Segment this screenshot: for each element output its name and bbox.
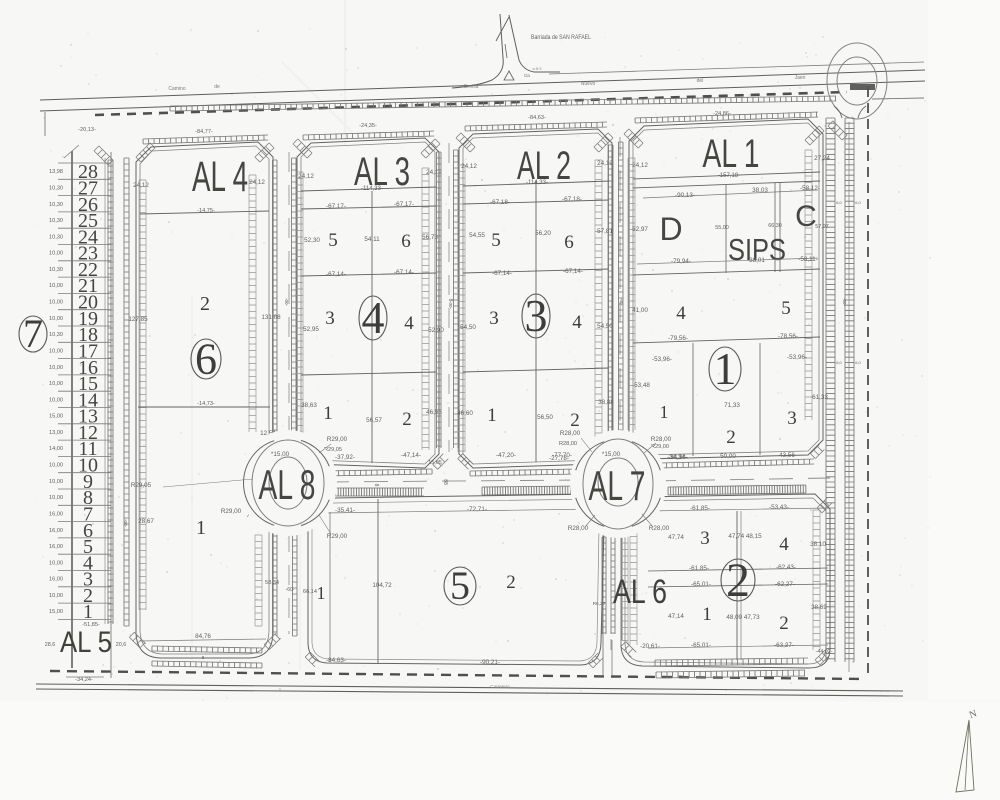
svg-text:15,00: 15,00 [49,609,63,615]
svg-text:2: 2 [200,293,210,315]
svg-text:38,03: 38,03 [752,187,768,194]
svg-text:24,12: 24,12 [133,182,149,189]
svg-text:-00-: -00- [842,298,847,307]
svg-text:24,12: 24,12 [461,163,477,170]
svg-text:54,55: 54,55 [469,232,485,239]
svg-text:71,33: 71,33 [724,402,740,409]
svg-text:-90,13-: -90,13- [675,192,695,199]
svg-text:16,00: 16,00 [49,544,63,550]
svg-text:1: 1 [323,403,333,424]
svg-text:52,30: 52,30 [304,237,320,244]
svg-text:38,63: 38,63 [301,402,317,409]
svg-text:4: 4 [362,292,385,343]
svg-text:3: 3 [787,408,797,429]
svg-text:10,00: 10,00 [49,348,63,354]
svg-text:de: de [214,84,220,90]
svg-text:AL 7: AL 7 [589,462,646,509]
svg-text:4: 4 [676,303,686,324]
svg-text:84,76: 84,76 [195,633,211,640]
svg-text:1: 1 [714,343,737,394]
svg-text:-44,02-: -44,02- [815,649,832,655]
svg-text:2: 2 [779,613,789,634]
svg-text:14,00: 14,00 [49,446,63,452]
svg-text:5: 5 [781,298,791,319]
svg-text:47,74 48,15: 47,74 48,15 [728,533,762,540]
svg-text:-67,14-: -67,14- [492,270,512,277]
svg-text:10,30: 10,30 [49,267,63,273]
svg-text:15,05: 15,05 [428,460,442,466]
svg-text:5: 5 [491,230,501,251]
svg-text:52,95: 52,95 [303,326,319,333]
svg-text:54,50: 54,50 [460,324,476,331]
svg-text:55,00: 55,00 [715,225,729,231]
svg-text:*15,00: *15,00 [271,451,290,458]
svg-text:52,97: 52,97 [632,226,648,233]
svg-text:24,12: 24,12 [298,173,314,180]
svg-text:47,74: 47,74 [668,534,684,541]
svg-text:24,12: 24,12 [249,179,265,186]
svg-text:-34,34-: -34,34- [668,454,688,461]
svg-text:2: 2 [506,572,516,593]
svg-text:R28,00: R28,00 [559,441,577,447]
svg-text:-79,56-: -79,56- [668,335,688,342]
svg-text:56,57: 56,57 [366,417,382,424]
svg-text:-84,63-: -84,63- [326,657,346,664]
svg-text:1: 1 [660,402,669,422]
svg-text:-58,12-: -58,12- [800,185,820,192]
svg-text:10,00: 10,00 [49,381,63,387]
svg-text:2: 2 [726,427,736,448]
svg-text:-61,85-: -61,85- [690,505,710,512]
svg-text:24,12: 24,12 [597,160,613,167]
svg-text:1: 1 [702,604,712,625]
svg-text:-47,20-: -47,20- [496,452,516,459]
svg-text:48: 48 [677,674,683,680]
svg-text:10,00: 10,00 [49,251,63,257]
svg-text:5: 5 [328,230,338,251]
svg-text:38,10: 38,10 [810,541,826,548]
svg-text:-47,14-: -47,14- [401,452,421,459]
svg-text:20,6: 20,6 [116,642,127,648]
svg-text:127,85: 127,85 [128,316,148,323]
svg-text:3: 3 [700,528,710,549]
svg-text:-67,18-: -67,18- [490,199,510,206]
svg-text:10,30: 10,30 [49,186,63,192]
svg-text:-67,17-: -67,17- [326,203,346,210]
svg-text:28,67: 28,67 [138,518,154,525]
svg-text:10,30: 10,30 [49,218,63,224]
svg-text:10,00: 10,00 [49,397,63,403]
svg-text:10,00: 10,00 [49,283,63,289]
svg-text:D: D [659,211,682,247]
svg-text:10,00: 10,00 [49,593,63,599]
svg-text:2: 2 [570,410,580,431]
svg-text:4: 4 [572,312,582,333]
svg-text:2: 2 [402,409,412,430]
svg-text:Camino: Camino [168,86,185,92]
svg-text:1: 1 [83,601,93,623]
svg-text:16,00: 16,00 [49,512,63,518]
svg-text:10,30: 10,30 [49,202,63,208]
svg-text:13,98: 13,98 [49,169,63,175]
svg-text:38,01: 38,01 [749,257,765,264]
svg-text:8: 8 [202,655,205,660]
svg-text:47,14: 47,14 [668,613,684,620]
svg-text:R29,00: R29,00 [327,533,348,540]
svg-text:6,0: 6,0 [836,200,842,205]
svg-text:66,14: 66,14 [303,589,317,595]
svg-text:50,00: 50,00 [720,453,736,460]
svg-text:10,00: 10,00 [49,560,63,566]
svg-text:8: 8 [447,299,453,302]
svg-text:16,00: 16,00 [49,577,63,583]
svg-text:6: 6 [564,232,574,253]
svg-text:4: 4 [404,313,414,334]
svg-text:27,24: 27,24 [814,155,830,162]
svg-text:-67,18-: -67,18- [562,196,582,203]
svg-text:56,20: 56,20 [535,230,551,237]
svg-text:-53,96-: -53,96- [652,356,672,363]
svg-text:13,00: 13,00 [49,430,63,436]
svg-text:61,33: 61,33 [812,394,828,401]
svg-text:6,0: 6,0 [855,200,861,205]
svg-text:-53,43-: -53,43- [769,504,789,511]
svg-text:-58,11-: -58,11- [798,256,817,263]
svg-text:6,0: 6,0 [855,360,861,365]
svg-text:-62,27-: -62,27- [775,581,795,588]
svg-text:-61,85-: -61,85- [689,565,709,572]
svg-text:-20,13-: -20,13- [78,127,96,133]
svg-text:R29,00: R29,00 [327,436,348,443]
svg-text:10,30: 10,30 [49,234,63,240]
svg-text:41,00: 41,00 [632,307,648,314]
svg-text:Jaen: Jaen [795,75,806,81]
svg-text:-67,14-: -67,14- [326,271,346,278]
svg-text:7: 7 [23,311,43,356]
svg-text:4: 4 [779,534,789,555]
svg-text:-62,43-: -62,43- [776,564,796,571]
svg-text:16,00: 16,00 [49,528,63,534]
svg-text:58,34: 58,34 [265,580,279,586]
svg-text:AL 6: AL 6 [613,573,667,611]
svg-text:8: 8 [373,484,379,487]
svg-text:-34,24-: -34,24- [75,677,93,683]
svg-text:-84,77-: -84,77- [195,129,213,135]
svg-text:6: 6 [401,231,411,252]
svg-text:88: 88 [442,479,448,485]
svg-text:10,00: 10,00 [49,479,63,485]
svg-text:57,97: 57,97 [815,224,829,230]
svg-text:AL 5: AL 5 [60,626,112,659]
svg-text:Nuevo: Nuevo [581,81,596,87]
svg-text:6: 6 [195,335,217,384]
svg-text:1: 1 [196,517,206,539]
svg-text:-63,27-: -63,27- [774,642,794,649]
svg-text:-14,73-: -14,73- [197,401,215,407]
svg-text:10,00: 10,00 [49,495,63,501]
svg-text:54,50: 54,50 [597,323,613,330]
svg-text:56,50: 56,50 [537,414,553,421]
svg-text:-37,92-: -37,92- [335,454,355,461]
svg-text:1: 1 [487,405,497,426]
svg-text:38,69: 38,69 [811,604,827,611]
svg-text:AL 4: AL 4 [192,153,248,201]
svg-text:R6,27: R6,27 [593,601,606,607]
svg-text:2: 2 [726,554,750,607]
svg-text:-27,78-: -27,78- [549,455,569,462]
svg-text:56,73: 56,73 [422,234,438,241]
svg-text:5: 5 [450,563,470,608]
svg-text:-24,35-: -24,35- [359,123,377,129]
svg-text:-20,61-: -20,61- [640,643,660,650]
svg-text:R28,00: R28,00 [560,430,581,437]
svg-text:-65,01-: -65,01- [691,642,711,649]
svg-text:53,48: 53,48 [634,382,650,389]
svg-text:46,60: 46,60 [457,410,473,417]
svg-text:a N 5: a N 5 [532,67,541,71]
svg-text:38,88: 38,88 [598,399,614,406]
svg-text:-78,56-: -78,56- [778,333,798,340]
svg-text:6,0: 6,0 [836,360,842,365]
svg-text:-90,21-: -90,21- [480,659,500,666]
svg-text:Da: Da [524,73,530,78]
svg-text:-65,01-: -65,01- [691,581,711,588]
svg-text:Barriada de SAN RAFAEL: Barriada de SAN RAFAEL [531,34,591,41]
svg-text:*15,00: *15,00 [602,451,621,458]
svg-text:AL 1: AL 1 [703,132,760,176]
svg-text:15,00: 15,00 [49,414,63,420]
svg-text:Sevilla: Sevilla [464,84,479,90]
svg-text:10,30: 10,30 [49,332,63,338]
svg-text:-67,14-: -67,14- [394,269,414,276]
svg-text:28,6: 28,6 [45,642,56,648]
svg-text:del: del [697,78,704,84]
svg-text:10,00: 10,00 [49,316,63,322]
svg-text:-67,17-: -67,17- [394,201,414,208]
svg-text:3: 3 [325,308,335,329]
svg-text:R28,00: R28,00 [651,436,672,443]
svg-text:R29,05: R29,05 [131,482,152,489]
svg-text:131,08: 131,08 [261,314,281,321]
svg-text:-00-: -00- [284,298,289,307]
svg-text:-35,41-: -35,41- [335,507,355,514]
svg-text:-84,63-: -84,63- [528,115,546,121]
svg-text:Carretera: Carretera [490,684,510,689]
svg-text:10,00: 10,00 [49,463,63,469]
svg-text:-114,33-: -114,33- [526,180,548,186]
svg-text:48,09 47,73: 48,09 47,73 [726,614,760,621]
svg-text:C: C [795,200,817,233]
svg-text:AL 8: AL 8 [259,461,316,508]
svg-text:-157,18-: -157,18- [718,173,740,179]
svg-text:R29,00: R29,00 [221,508,242,515]
svg-text:24,12: 24,12 [632,162,648,169]
svg-text:10,00: 10,00 [49,300,63,306]
svg-text:10,00: 10,00 [49,365,63,371]
svg-text:-72,71-: -72,71- [467,506,487,513]
svg-text:3: 3 [525,290,548,341]
svg-text:-14,75-: -14,75- [197,208,215,214]
svg-text:3: 3 [489,308,499,329]
svg-text:104,72: 104,72 [372,582,392,589]
svg-text:54,11: 54,11 [364,236,380,243]
svg-text:-60-: -60- [286,587,295,593]
svg-text:66,30: 66,30 [768,223,782,229]
svg-text:-67,14-: -67,14- [563,268,583,275]
svg-text:1: 1 [317,583,326,603]
svg-text:-53,96-: -53,96- [787,354,807,361]
svg-text:-79,94-: -79,94- [671,258,691,265]
svg-text:43,56: 43,56 [779,452,795,459]
